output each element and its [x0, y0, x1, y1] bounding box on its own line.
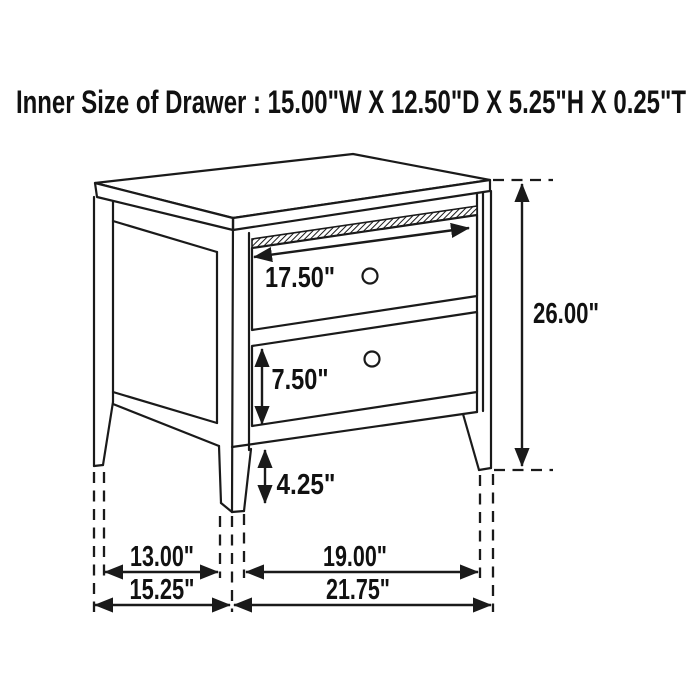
dim-label-drawer-face-width: 17.50" [265, 262, 335, 294]
diagram-canvas: Inner Size of Drawer : 15.00"W X 12.50"D… [0, 0, 700, 700]
dim-label-side-leg-span: 13.00" [130, 541, 194, 573]
nightstand-dimension-diagram: Inner Size of Drawer : 15.00"W X 12.50"D… [0, 0, 700, 700]
dim-label-overall-height: 26.00" [533, 298, 599, 330]
dim-label-overall-depth: 15.25" [130, 574, 195, 606]
drawer-2-knob-icon [365, 352, 380, 367]
nightstand-drawing [94, 154, 491, 512]
drawer-1-knob-icon [363, 269, 378, 284]
dim-label-front-leg-span: 19.00" [323, 541, 387, 573]
dim-label-drawer-face-height: 7.50" [272, 364, 329, 396]
page-title: Inner Size of Drawer : 15.00"W X 12.50"D… [16, 84, 686, 120]
side-panel [94, 197, 233, 512]
dim-label-leg-height: 4.25" [277, 469, 336, 501]
dim-label-overall-width: 21.75" [326, 574, 390, 606]
